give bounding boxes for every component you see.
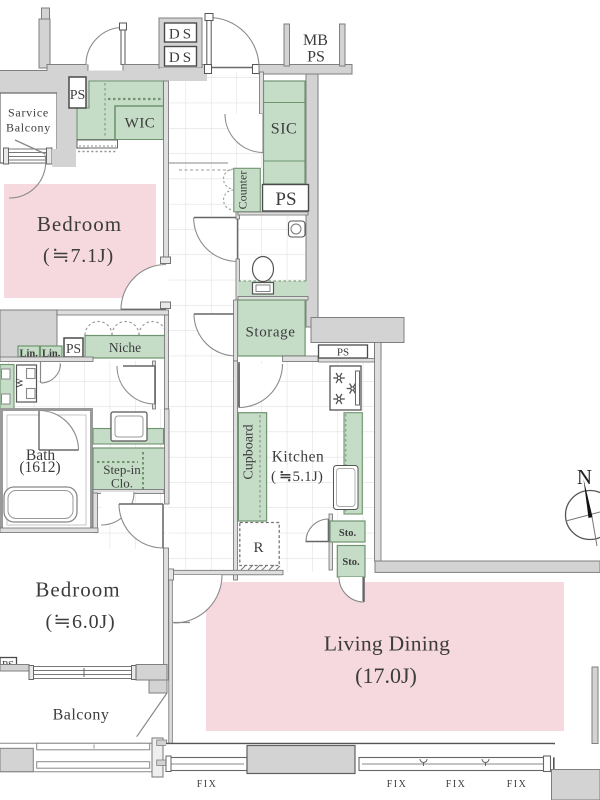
svg-text:(: (	[43, 245, 50, 267]
svg-text:SIC: SIC	[271, 121, 297, 138]
svg-text:DS: DS	[169, 50, 194, 66]
svg-text:PS: PS	[66, 341, 81, 356]
svg-text:N: N	[577, 465, 592, 489]
svg-text:PS: PS	[337, 347, 349, 359]
svg-text:(17.0J): (17.0J)	[355, 663, 417, 688]
svg-text:R: R	[253, 540, 263, 556]
svg-text:PS: PS	[307, 49, 325, 66]
svg-text:Niche: Niche	[109, 340, 141, 355]
svg-text:FIX: FIX	[507, 779, 528, 790]
svg-text:Sto.: Sto.	[342, 557, 360, 568]
svg-text:W: W	[15, 378, 26, 388]
svg-text:(: (	[46, 611, 53, 633]
svg-text:FIX: FIX	[446, 779, 467, 790]
svg-text:Sarvice: Sarvice	[8, 106, 49, 120]
svg-text:Storage: Storage	[245, 325, 295, 341]
svg-text:Balcony: Balcony	[6, 121, 51, 135]
svg-text:(1612): (1612)	[19, 459, 60, 476]
svg-text:6.0J): 6.0J)	[72, 611, 115, 633]
svg-text:Bedroom: Bedroom	[37, 212, 122, 236]
svg-text:(: (	[271, 469, 276, 485]
svg-text:FIX: FIX	[387, 779, 408, 790]
svg-text:DS: DS	[169, 27, 194, 43]
svg-text:Bedroom: Bedroom	[35, 578, 120, 602]
svg-text:5.1J): 5.1J)	[293, 469, 324, 485]
svg-text:PS: PS	[70, 88, 86, 103]
svg-text:Balcony: Balcony	[53, 707, 110, 724]
svg-text:Kitchen: Kitchen	[272, 449, 325, 466]
svg-text:MB: MB	[303, 32, 328, 49]
svg-text:Clo.: Clo.	[111, 476, 133, 491]
svg-text:7.1J): 7.1J)	[71, 245, 114, 267]
svg-text:FIX: FIX	[197, 779, 218, 790]
svg-text:Sto.: Sto.	[339, 528, 357, 539]
svg-text:PS: PS	[275, 189, 296, 210]
svg-text:Cupboard: Cupboard	[242, 424, 257, 479]
svg-text:Counter: Counter	[236, 171, 250, 210]
svg-text:Living Dining: Living Dining	[324, 632, 450, 656]
svg-text:WIC: WIC	[125, 116, 156, 132]
